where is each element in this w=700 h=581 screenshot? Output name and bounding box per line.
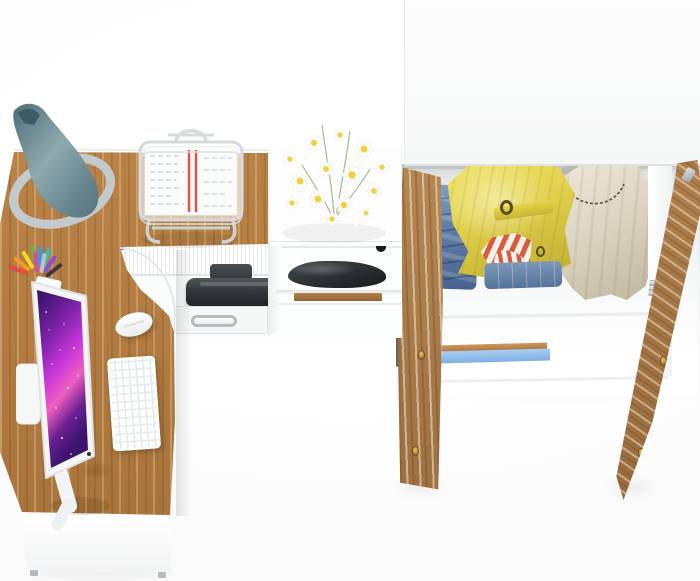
desk-foot bbox=[158, 572, 166, 578]
desk-foot bbox=[30, 570, 38, 576]
desk-side-shadow bbox=[176, 250, 192, 516]
tray-papers bbox=[145, 147, 237, 215]
drawer-handle bbox=[191, 315, 237, 327]
wardrobe-shelf-edge bbox=[416, 312, 666, 319]
wood-board-on-shelf bbox=[294, 293, 382, 301]
jacket-cuff-buckle bbox=[536, 246, 545, 257]
cubby-shelf-edge bbox=[276, 303, 402, 305]
cpu-holder bbox=[16, 364, 40, 424]
blue-blanket bbox=[437, 349, 550, 364]
right-door-shadow bbox=[610, 482, 652, 492]
keyboard bbox=[107, 355, 161, 451]
bouquet-shadow bbox=[282, 223, 386, 243]
brass-knob bbox=[412, 446, 419, 456]
coat-strap-chain bbox=[554, 160, 658, 300]
cubby-unit bbox=[270, 242, 402, 336]
daisy-bouquet bbox=[262, 105, 407, 247]
mouse-seam bbox=[123, 320, 145, 328]
dark-shoe bbox=[288, 261, 386, 288]
furniture-scene bbox=[0, 0, 700, 581]
desk-lamp bbox=[0, 95, 130, 240]
folded-jeans bbox=[484, 261, 563, 290]
monitor-chin-dot bbox=[87, 452, 91, 456]
wardrobe-bottom-edge bbox=[436, 376, 668, 383]
jacket-belt-buckle bbox=[500, 200, 513, 215]
daisies bbox=[283, 128, 389, 226]
monitor bbox=[16, 268, 112, 530]
cubby-shelf-edge bbox=[276, 290, 402, 292]
silver-hinge bbox=[681, 167, 696, 184]
wardrobe-top-panel bbox=[404, 0, 700, 166]
brass-knob bbox=[418, 350, 425, 360]
document-tray bbox=[128, 118, 254, 252]
